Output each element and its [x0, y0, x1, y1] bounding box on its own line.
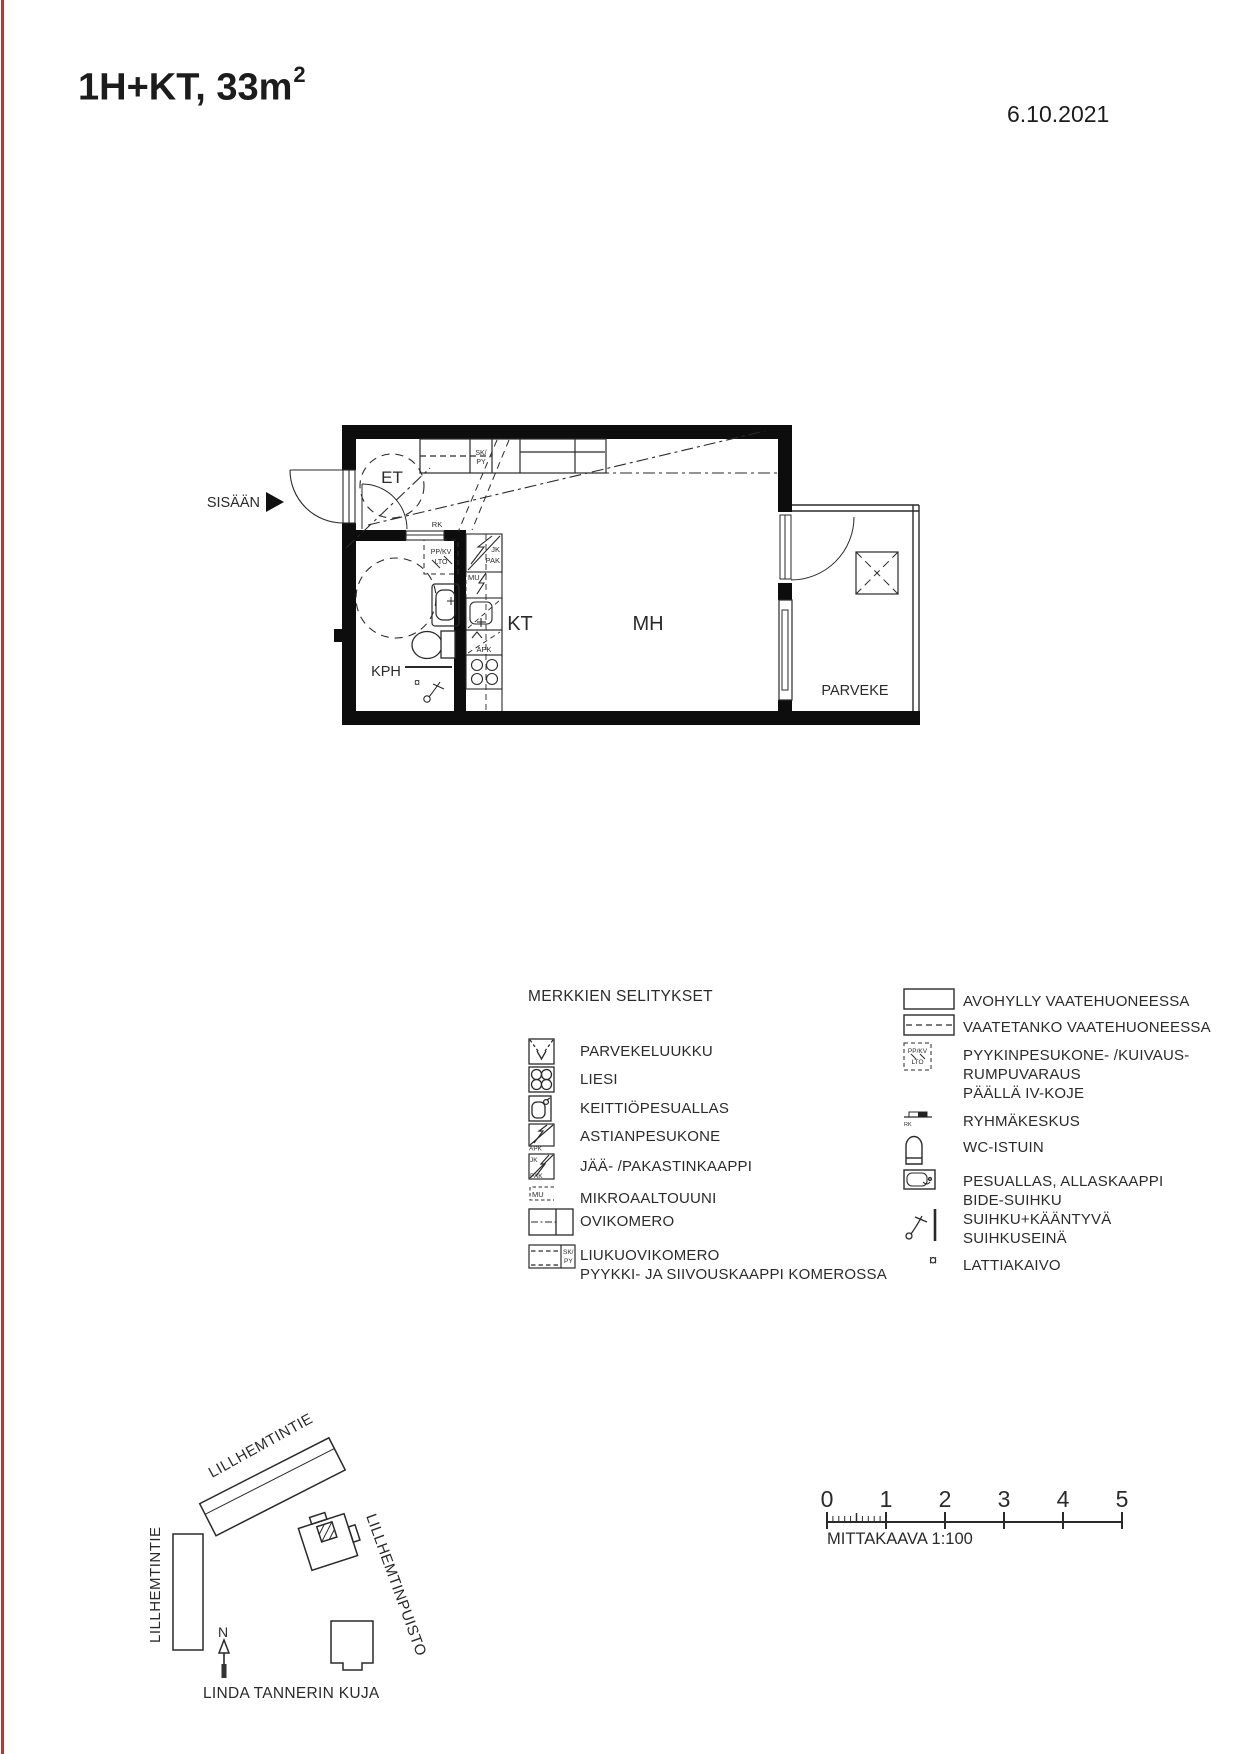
plan-date: 6.10.2021 — [1007, 101, 1109, 128]
balcony — [779, 505, 919, 711]
scale-caption: MITTAKAAVA 1:100 — [827, 1530, 973, 1548]
svg-text:0: 0 — [821, 1486, 834, 1512]
shower-icon — [424, 682, 444, 702]
svg-text:PAK: PAK — [530, 1173, 543, 1180]
closet-tag-py: PY — [476, 459, 486, 466]
north-label: N — [218, 1624, 228, 1640]
svg-text:3: 3 — [998, 1486, 1011, 1512]
kph-door — [362, 484, 407, 529]
legend-item-vaatetanko: VAATETANKO VAATEHUONEESSA — [903, 1014, 1211, 1036]
tag-ppkv: PP/KV — [431, 549, 452, 556]
parvekeluukku-icon — [528, 1038, 580, 1065]
tag-jk: JK — [491, 545, 500, 554]
tag-pak: PAK — [486, 556, 500, 565]
site-building-south — [331, 1621, 373, 1670]
room-label-kt: KT — [507, 613, 533, 635]
legend-item-liukuovikomero: SK/PY LIUKUOVIKOMEROPYYKKI- JA SIIVOUSKA… — [528, 1242, 887, 1282]
legend-item-avohylly: AVOHYLLY VAATEHUONEESSA — [903, 988, 1190, 1010]
kitchen-sink-icon — [528, 1095, 580, 1122]
floorplan-page: 1H+KT, 33m2 6.10.2021 SISÄÄN — [0, 0, 1240, 1754]
legend-item-parvekeluukku: PARVEKELUUKKU — [528, 1038, 713, 1065]
legend-item-mikroaaltouuni: MU MIKROAALTOUUNI — [528, 1185, 716, 1206]
turning-circle-kph — [356, 558, 436, 638]
svg-text:4: 4 — [1057, 1486, 1070, 1512]
north-arrow-icon — [219, 1640, 229, 1678]
legend-item-wc-istuin: WC-ISTUIN — [903, 1134, 1044, 1166]
page-edge-line — [1, 0, 4, 1754]
street-label-left: LILLHEMTINTIE — [147, 1526, 164, 1643]
clothes-rail-icon — [903, 1014, 963, 1036]
svg-text:PY: PY — [564, 1258, 573, 1265]
legend-item-ryhmakeskus: RK RYHMÄKESKUS — [903, 1108, 1080, 1129]
washer-reservation-icon: PP/KVLTO — [903, 1042, 963, 1072]
closets — [420, 439, 606, 473]
legend-item-keittiopesuallas: KEITTIÖPESUALLAS — [528, 1095, 729, 1122]
walls — [334, 425, 920, 725]
ovikomero-icon — [528, 1208, 580, 1236]
site-building-west — [173, 1534, 203, 1650]
floor-drain-symbol: ¤ — [414, 677, 420, 689]
street-label-bottom: LINDA TANNERIN KUJA — [203, 1685, 380, 1702]
entrance-label: SISÄÄN — [207, 494, 260, 511]
distribution-board-icon: RK — [903, 1108, 963, 1128]
stove-icon — [528, 1066, 580, 1093]
tag-mu: MU — [468, 573, 480, 582]
legend-item-lattiakaivo: ¤ LATTIAKAIVO — [903, 1252, 1061, 1273]
shower-icon — [903, 1206, 963, 1244]
legend-heading: MERKKIEN SELITYKSET — [528, 988, 713, 1006]
tag-rk: RK — [432, 520, 442, 529]
room-label-mh: MH — [632, 613, 663, 635]
closet-tag-sk: SK/ — [475, 450, 486, 457]
legend-item-jaapakastinkaappi: JKPAK JÄÄ- /PAKASTINKAAPPI — [528, 1153, 752, 1180]
legend-item-liesi: LIESI — [528, 1066, 618, 1093]
site-building-current — [296, 1505, 364, 1570]
scale-numbers: 0 1 2 3 4 5 — [821, 1486, 1129, 1512]
svg-text:SK/: SK/ — [563, 1249, 574, 1256]
svg-text:MU: MU — [532, 1190, 544, 1199]
svg-text:2: 2 — [939, 1486, 952, 1512]
basin-cabinet-icon — [903, 1168, 963, 1192]
title-main: 1H+KT, 33m — [78, 67, 292, 109]
entrance-arrow-icon — [266, 492, 284, 512]
svg-text:LTO: LTO — [911, 1059, 923, 1066]
liukuovikomero-icon: SK/PY — [528, 1242, 580, 1272]
floor-plan: SISÄÄN SK/ PY RK — [185, 405, 935, 740]
open-shelf-icon — [903, 988, 963, 1010]
legend-item-astianpesukone: APK ASTIANPESUKONE — [528, 1123, 720, 1151]
tag-apk: APK — [476, 645, 491, 654]
dishwasher-icon: APK — [528, 1123, 580, 1151]
page-title: 1H+KT, 33m2 — [78, 66, 305, 110]
street-label-top: LILLHEMTINTIE — [206, 1410, 316, 1481]
room-label-et: ET — [381, 468, 403, 487]
svg-text:PP/KV: PP/KV — [908, 1048, 928, 1055]
svg-text:5: 5 — [1116, 1486, 1129, 1512]
entrance-door — [290, 470, 355, 523]
scale-ruler — [826, 1512, 1122, 1529]
tag-lto: LTO — [435, 559, 449, 566]
legend-item-suihku: SUIHKU+KÄÄNTYVÄSUIHKUSEINÄ — [903, 1206, 1111, 1246]
toilet-icon — [903, 1134, 963, 1166]
svg-text:1: 1 — [880, 1486, 893, 1512]
site-map: N LILLHEMTINTIE LILLHEMTINTIE LILLHEMTIN… — [120, 1395, 440, 1715]
room-label-parveke: PARVEKE — [821, 683, 888, 699]
svg-text:APK: APK — [529, 1146, 543, 1152]
legend-item-pesuallas: PESUALLAS, ALLASKAAPPIBIDE-SUIHKU — [903, 1168, 1163, 1208]
legend-item-ovikomero: OVIKOMERO — [528, 1208, 674, 1236]
svg-text:JK: JK — [530, 1157, 538, 1164]
legend-item-pyykinpesukone: PP/KVLTO PYYKINPESUKONE- /KUIVAUS-RUMPUV… — [903, 1042, 1189, 1101]
scale-bar: 0 1 2 3 4 5 — [810, 1478, 1155, 1556]
room-label-kph: KPH — [371, 664, 401, 680]
svg-text:RK: RK — [904, 1122, 912, 1128]
floor-drain-icon: ¤ — [903, 1252, 963, 1269]
toilet — [412, 631, 455, 659]
title-superscript: 2 — [293, 62, 305, 87]
microwave-icon: MU — [528, 1185, 580, 1203]
ppkv-reservation — [424, 540, 458, 574]
fridge-freezer-icon: JKPAK — [528, 1153, 580, 1180]
